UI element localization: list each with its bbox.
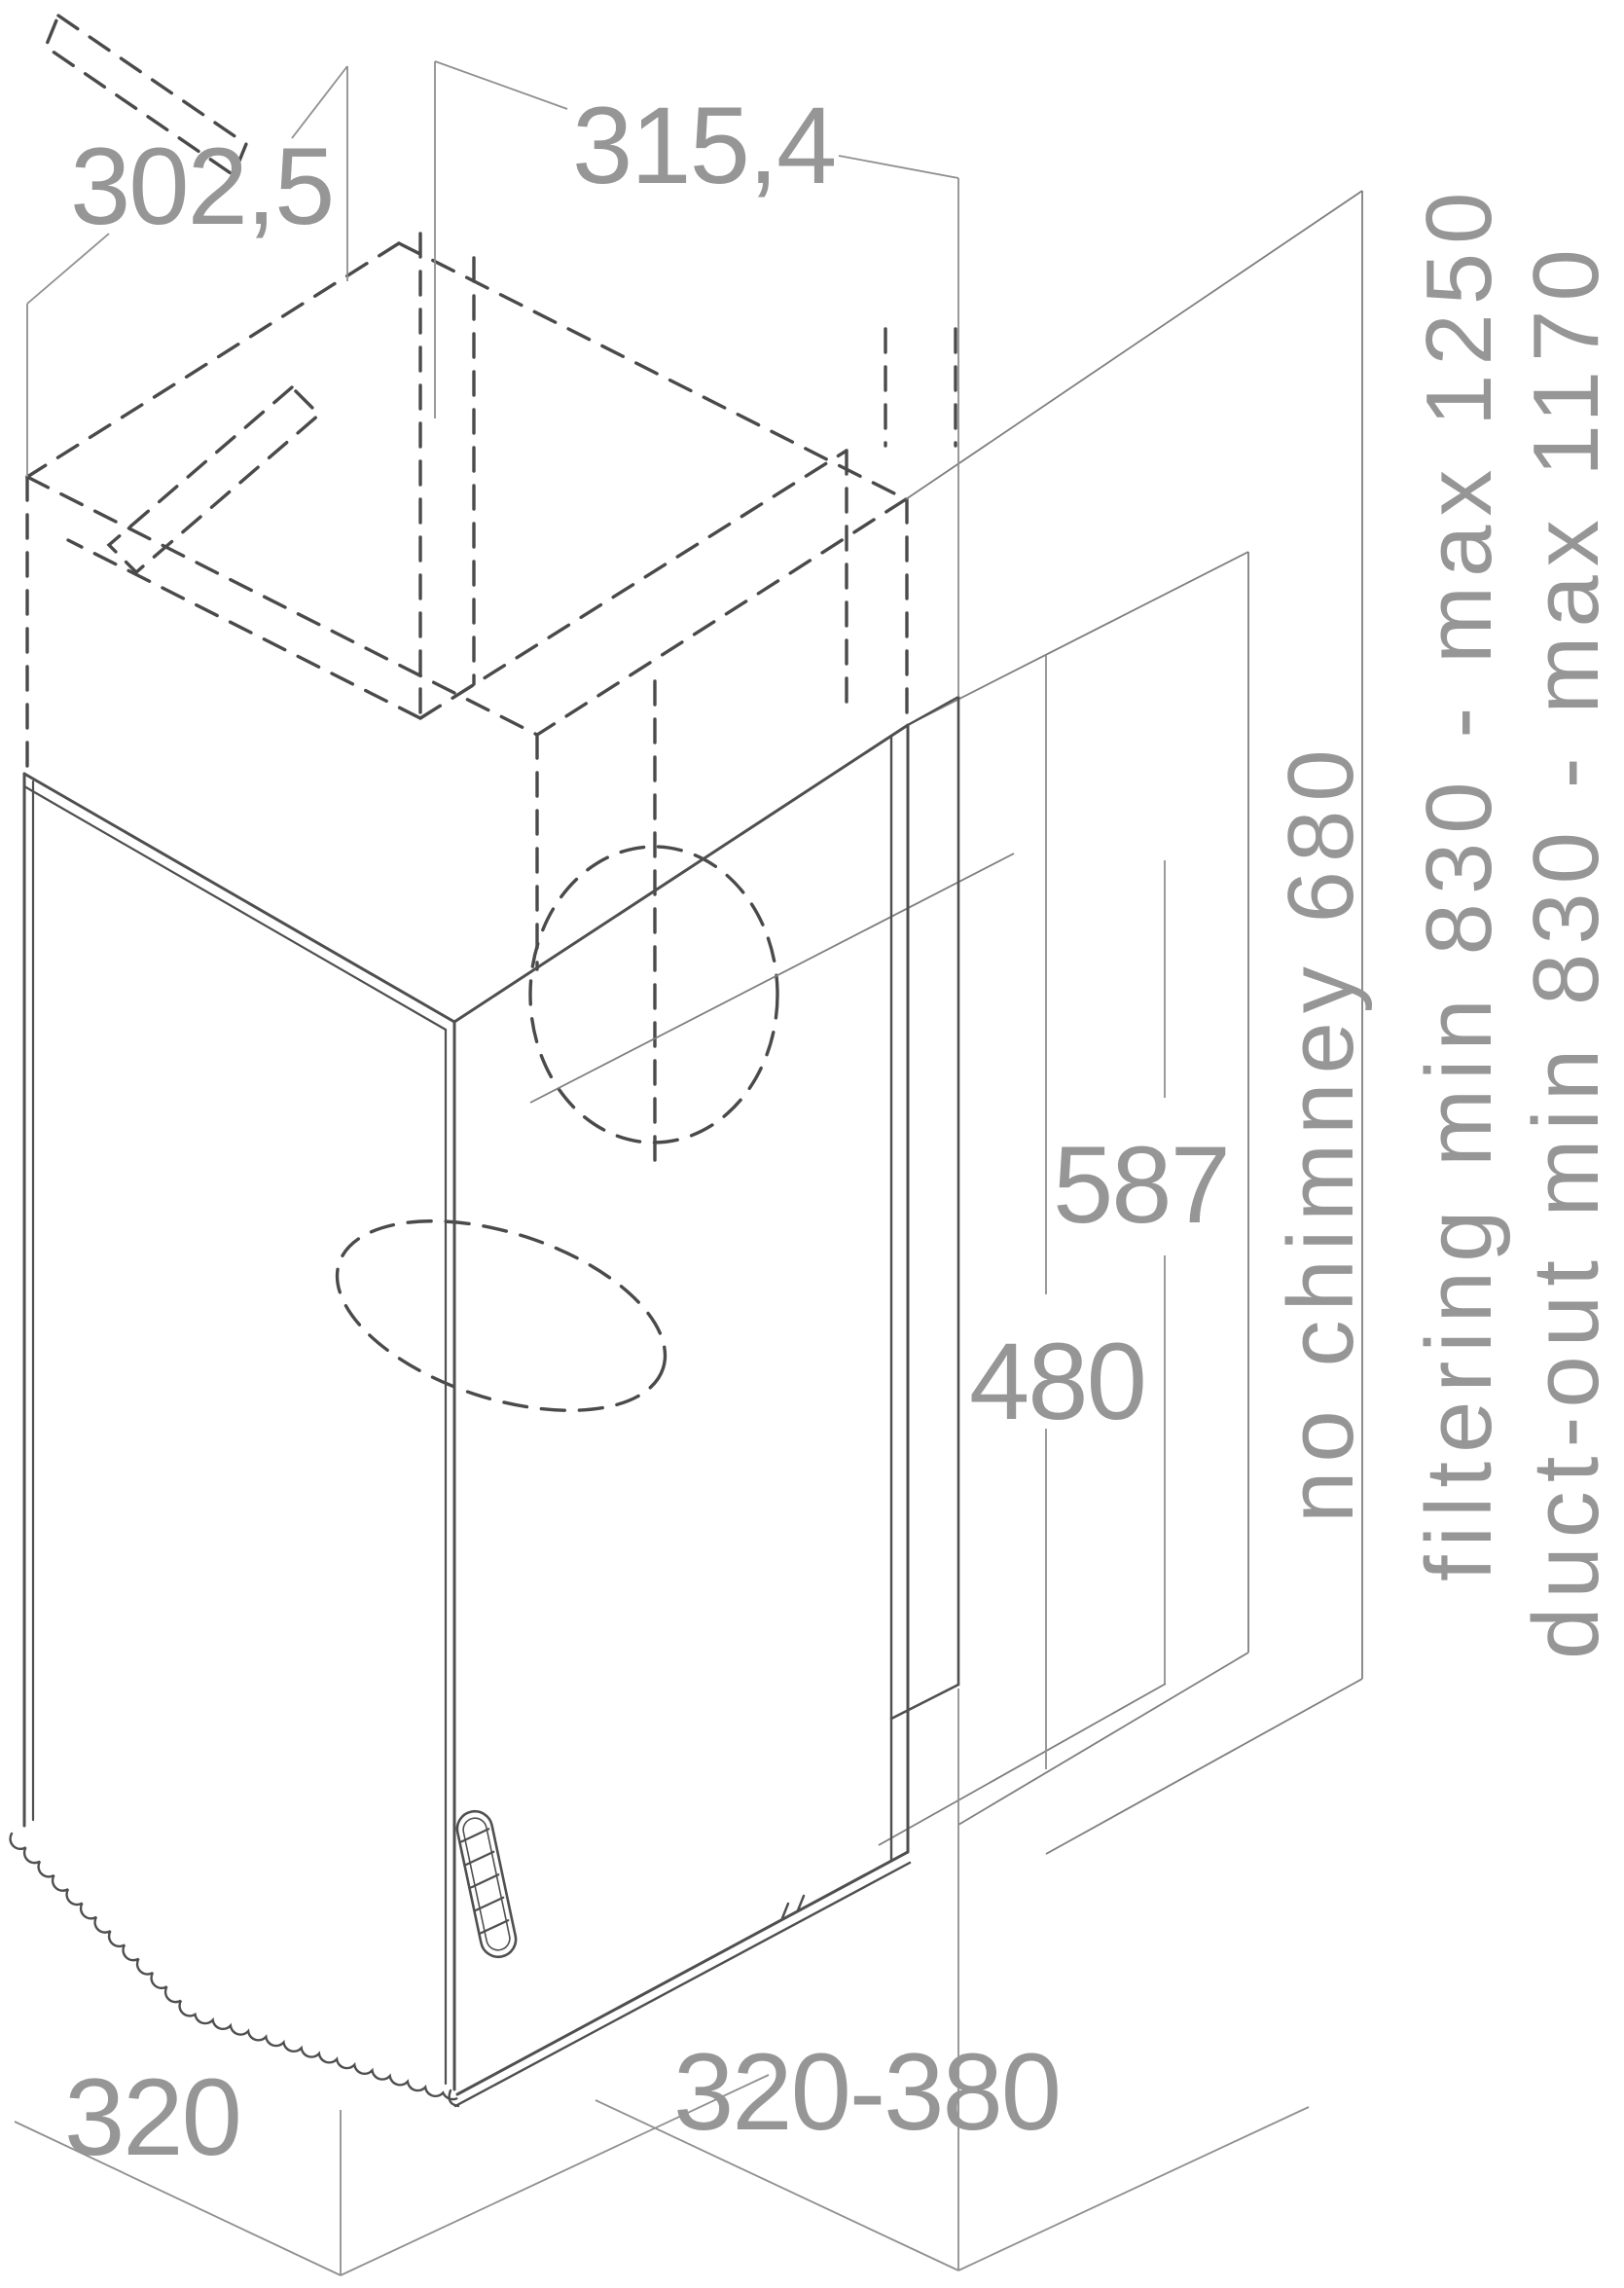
panel-top-edge-2	[906, 191, 1362, 499]
leader-315-4-right	[839, 156, 958, 178]
vent-slot-lower	[109, 387, 319, 572]
chimney-front-left-edge	[27, 477, 537, 735]
dimension-labels: 302,5 315,4 587 480 320 320-380 no chimn…	[64, 85, 1618, 2178]
inner-chimney-front-left-edge	[68, 540, 420, 718]
body-top-left-edge-inner	[24, 786, 446, 1030]
body-top-right-edge	[454, 725, 908, 1022]
recirculation-outlet-ellipse	[313, 1184, 688, 1447]
body-right-bottom-edge	[891, 1685, 958, 1719]
label-filtering-range: filtering min 830 - max 1250	[1407, 183, 1511, 1581]
label-height-587: 587	[1053, 1124, 1229, 1246]
label-height-480: 480	[969, 1321, 1145, 1442]
hood-dimension-diagram: 302,5 315,4 587 480 320 320-380 no chimn…	[0, 0, 1624, 2288]
leader-315-4-left	[435, 61, 567, 109]
panel-hidden-edge	[530, 853, 1014, 1103]
label-top-width: 315,4	[572, 85, 835, 206]
chimney-top-left-edge	[27, 243, 399, 477]
inner-chimney-front-right-edge	[420, 451, 847, 718]
body-top-left-edge-outer	[24, 774, 454, 1022]
label-duct-out-range: duct-out min 830 - max 1170	[1514, 240, 1618, 1659]
label-base-depth: 320	[64, 2056, 240, 2178]
chimney-front-right-edge	[537, 499, 906, 735]
panel-bottom-edge-3	[1046, 1679, 1362, 1854]
control-buttons	[454, 1808, 520, 1960]
body-right-top-edge	[908, 697, 958, 725]
label-no-chimney: no chimney 680	[1269, 741, 1373, 1523]
panel-bottom-edge-2	[958, 1652, 1248, 1825]
label-top-depth: 302,5	[70, 126, 333, 247]
panel-bottom-edge-1	[879, 1684, 1166, 1845]
label-base-width-range: 320-380	[673, 2031, 1060, 2153]
hood-body	[11, 697, 958, 2106]
diagram-page: 302,5 315,4 587 480 320 320-380 no chimn…	[0, 0, 1624, 2288]
